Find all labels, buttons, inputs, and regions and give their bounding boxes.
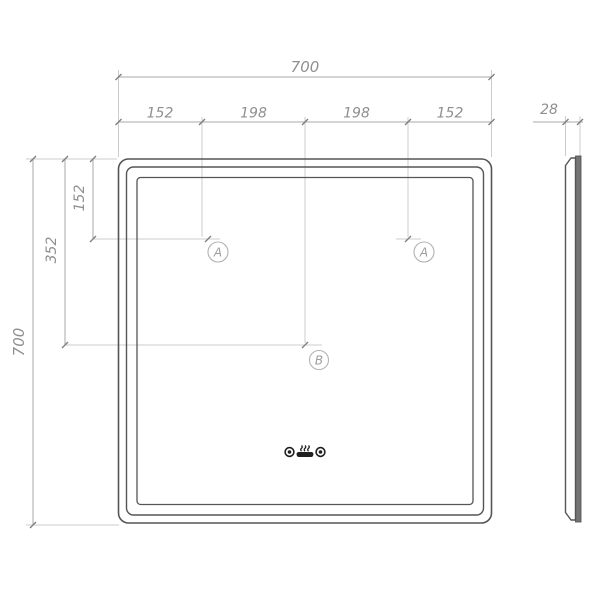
marker-letter: B [315,354,323,368]
dimension-value-segment: 198 [240,106,267,122]
dimension-left-offset-large: 352 [44,156,68,348]
dimension-value-segment: 152 [437,106,464,122]
feature-ticks [205,236,411,348]
markers: A A B [208,242,434,370]
anti-fog-icon [297,446,314,458]
dimension-value-left-offset-large: 352 [44,237,60,264]
touch-sensor-icon [285,448,294,457]
heater-pad [297,452,314,457]
dimension-thickness: 28 [533,102,583,125]
control-icons [285,446,325,458]
dimension-value-overall-height: 700 [10,328,28,357]
marker-letter: A [213,246,222,260]
touch-sensor-dot [288,450,292,454]
marker-letter: A [419,246,428,260]
side-view-body [566,158,576,520]
side-view-glass [576,156,582,522]
steam-wave [308,446,310,452]
dimension-top-overall-width: 700 [116,58,495,80]
side-view [566,156,582,522]
marker-b-center: B [310,351,329,370]
dimension-value-segment: 198 [343,106,370,122]
touch-sensor-icon [316,448,325,457]
steam-wave [301,446,303,452]
dimension-value-thickness: 28 [540,102,558,118]
mirror-technical-drawing: 700 152 198 198 152 700 352 152 [0,0,600,600]
dimension-left-offset-small: 152 [72,156,96,242]
dimension-left-overall-height: 700 [10,156,36,528]
marker-a-left: A [208,242,228,262]
dimension-top-segments: 152 198 198 152 [116,106,495,126]
marker-a-right: A [414,242,434,262]
dimension-value-segment: 152 [147,106,174,122]
touch-sensor-dot [319,450,323,454]
steam-wave [304,446,306,452]
dimension-value-overall-width: 700 [291,58,320,76]
dimension-value-left-offset-small: 152 [72,185,88,212]
